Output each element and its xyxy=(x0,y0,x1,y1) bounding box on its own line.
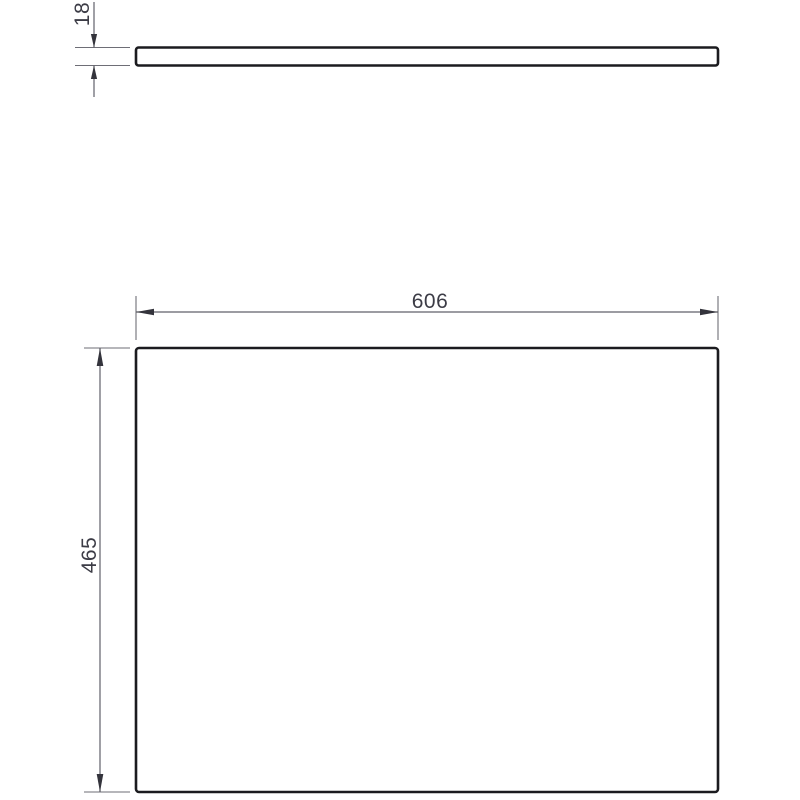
panel-front-view xyxy=(136,348,718,792)
dimension-label-height: 465 xyxy=(78,537,101,574)
dimension-arrow xyxy=(97,774,104,792)
technical-drawing-canvas: 18 606 465 xyxy=(0,0,800,800)
dimension-arrow xyxy=(97,348,104,366)
dimension-thickness: 18 xyxy=(71,2,130,97)
dimension-width: 606 xyxy=(136,290,718,340)
dimension-arrow xyxy=(700,309,718,316)
panel-side-view xyxy=(136,48,718,66)
dimension-label-width: 606 xyxy=(412,290,449,313)
dimension-height: 465 xyxy=(78,348,130,792)
dimension-arrow xyxy=(136,309,154,316)
dimension-arrow xyxy=(91,34,97,48)
dimension-label-thickness: 18 xyxy=(71,2,94,26)
dimension-arrow xyxy=(91,66,97,80)
